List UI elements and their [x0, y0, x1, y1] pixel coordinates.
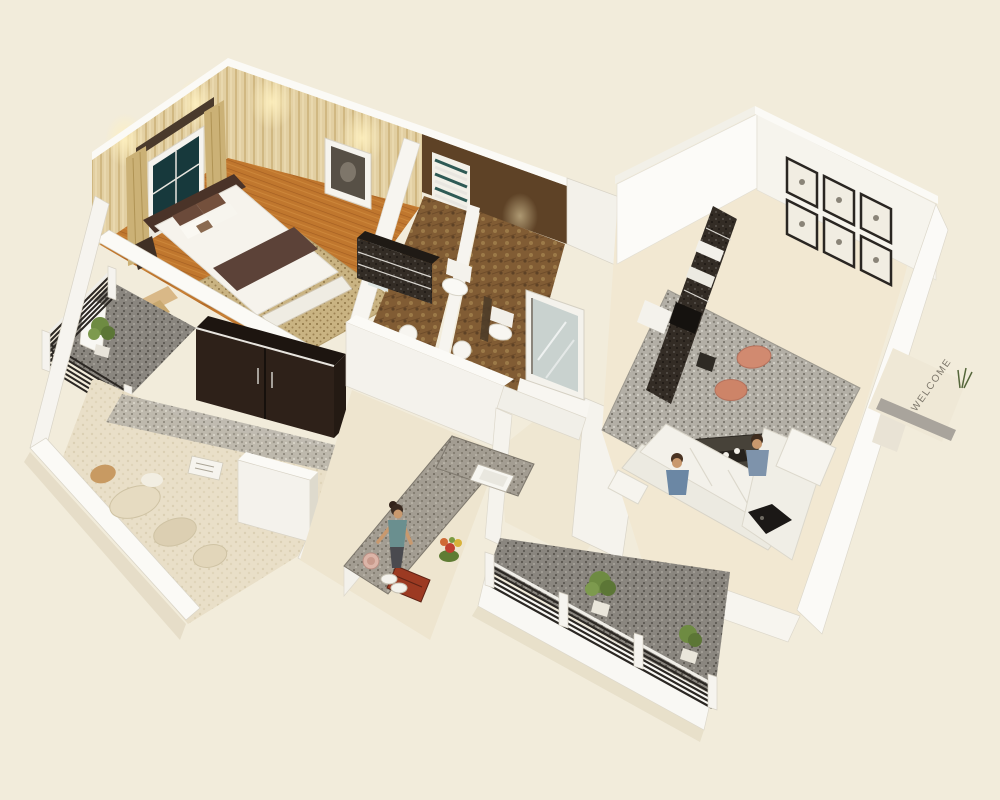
person-top: [388, 520, 407, 547]
person-torso: [746, 450, 769, 476]
floor-plan-svg: WELCOME: [0, 0, 1000, 800]
person-head: [394, 510, 403, 519]
person-head: [752, 439, 762, 449]
railing-post: [708, 674, 717, 710]
wall-art-figure: [340, 162, 356, 182]
railing-post: [108, 266, 116, 300]
plate: [381, 574, 397, 584]
railing-post: [42, 330, 50, 372]
person-torso: [666, 470, 689, 495]
object-highlight: [760, 516, 764, 520]
pink-pot-inner: [367, 557, 375, 565]
railing-post: [634, 633, 643, 669]
floor-pouf: [715, 380, 747, 401]
plate: [391, 583, 407, 593]
person-head: [672, 458, 682, 468]
railing-post: [559, 592, 568, 628]
cup: [734, 448, 740, 454]
small-pillow: [141, 473, 163, 487]
railing-post: [485, 552, 494, 588]
floor-plan-render: WELCOME: [0, 0, 1000, 800]
